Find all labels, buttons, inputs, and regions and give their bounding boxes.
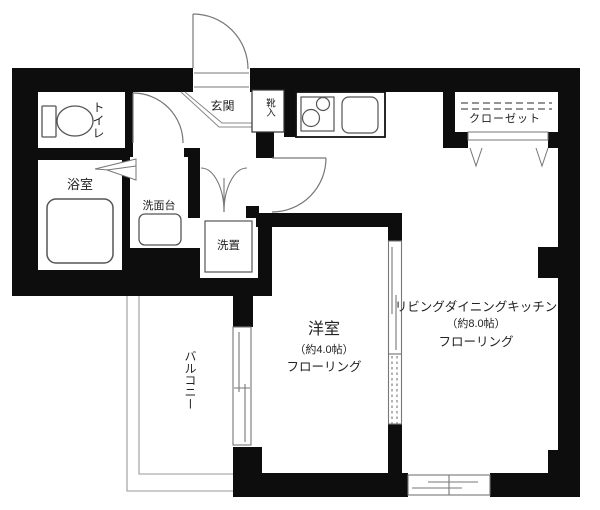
washbasin-icon xyxy=(139,214,181,245)
entrance-door-swing-icon xyxy=(193,14,249,87)
room-label-laundry: 洗置 xyxy=(205,240,252,253)
room-label-balcony: バルコニー xyxy=(182,350,199,410)
room-label-entrance: 玄関 xyxy=(195,100,250,114)
room-label-toilet: トイレ xyxy=(90,101,107,140)
kitchen-counter-icon xyxy=(296,92,385,137)
closet-hanger-icon xyxy=(461,103,552,109)
kitchen-sink-icon xyxy=(342,97,378,133)
room-label-ldk: リビングダイニングキッチン xyxy=(390,300,562,314)
door-swing-icon xyxy=(133,93,183,143)
floorplan: トイレ 浴室 洗面台 洗置 玄関 靴入 クローゼット 洋室 （約4.0帖） フロ… xyxy=(0,0,600,510)
plan-linework xyxy=(0,0,600,510)
bathtub-icon xyxy=(47,199,113,263)
room-partition-sliding-door-icon xyxy=(389,241,402,424)
door-swing-icon xyxy=(272,158,326,212)
room-label-shoe-box: 靴入 xyxy=(262,98,276,117)
room-floor-ldk: フローリング xyxy=(390,335,562,349)
stove-icon xyxy=(301,97,334,131)
bath-folding-door-icon xyxy=(95,159,136,180)
room-label-western-room: 洋室 xyxy=(266,321,382,339)
sliding-window-icon xyxy=(408,475,490,495)
room-size-western-room: （約4.0帖） xyxy=(266,344,382,357)
room-label-washstand: 洗面台 xyxy=(130,200,188,213)
toilet-icon xyxy=(42,106,93,137)
balcony-sliding-window-icon xyxy=(233,327,251,445)
room-size-ldk: （約8.0帖） xyxy=(390,318,562,331)
balcony-railing-icon xyxy=(127,296,233,491)
folding-door-icon xyxy=(201,168,247,212)
room-label-closet: クローゼット xyxy=(455,113,555,126)
closet-door-icon xyxy=(468,132,548,166)
room-label-bath: 浴室 xyxy=(38,178,122,193)
room-floor-western-room: フローリング xyxy=(266,360,382,374)
